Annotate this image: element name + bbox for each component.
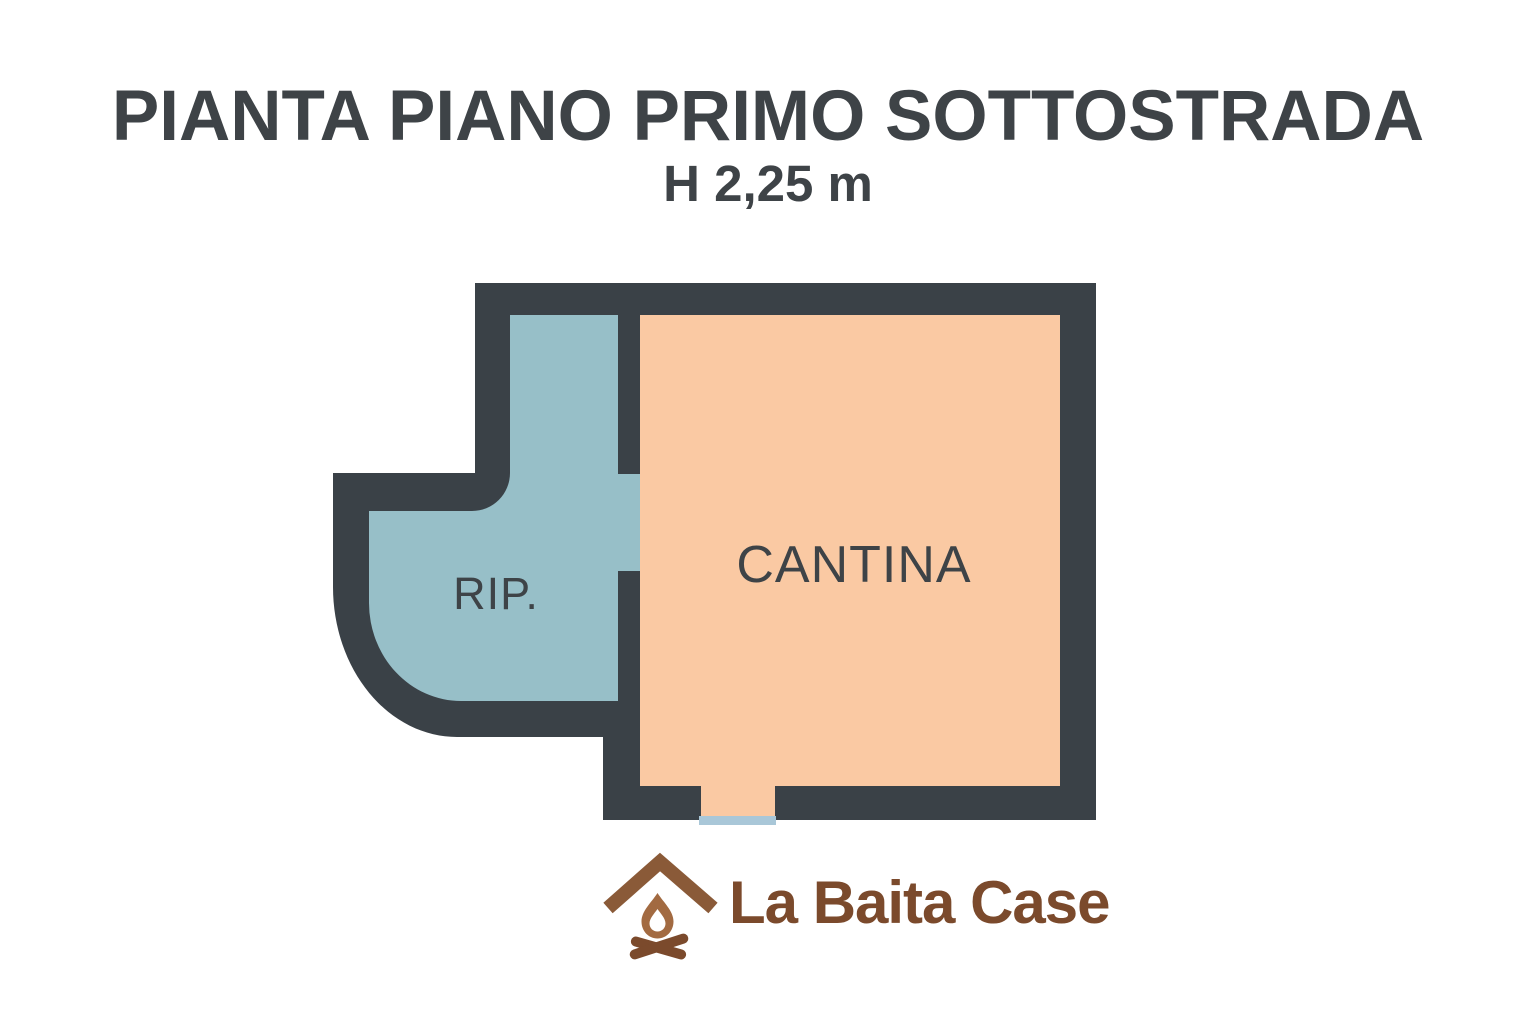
room-label-cantina: CANTINA <box>704 537 1004 593</box>
door-threshold <box>699 816 776 825</box>
flame-shape <box>642 893 674 939</box>
page: PIANTA PIANO PRIMO SOTTOSTRADA H 2,25 m … <box>0 0 1536 1024</box>
room-label-rip: RIP. <box>396 570 596 618</box>
logo-text: La Baita Case <box>729 871 1110 935</box>
house-campfire-icon <box>595 845 730 970</box>
